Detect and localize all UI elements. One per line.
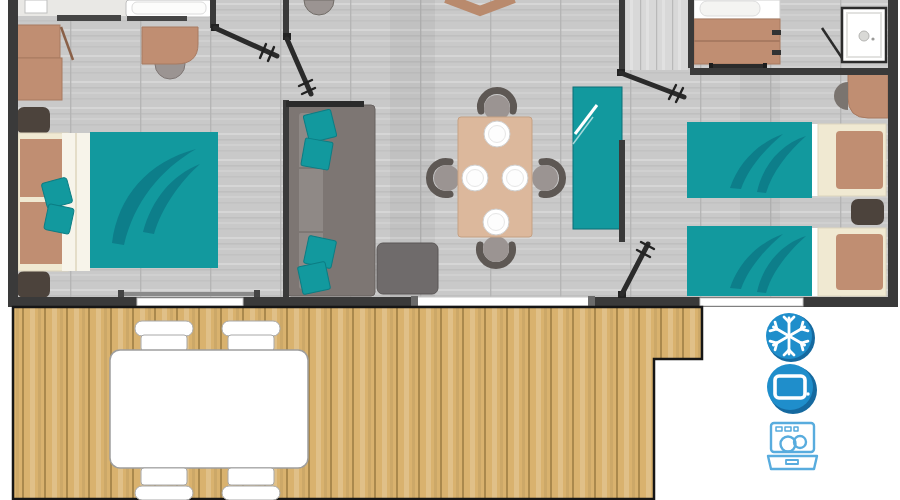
sofa-cushion: [301, 138, 333, 170]
drawer-handle: [772, 50, 781, 55]
floor-plan-canvas: [0, 0, 900, 500]
terrace: [13, 307, 702, 500]
nightstand: [17, 271, 50, 298]
single-bed-2: [687, 226, 886, 296]
right-wall: [888, 0, 898, 307]
partition-wall: [283, 100, 289, 297]
desk: [142, 27, 198, 64]
bathroom-wall: [690, 68, 888, 75]
sofa-rail-wall: [286, 101, 364, 107]
shower-drain: [859, 31, 869, 41]
pillow: [836, 131, 883, 189]
outdoor-chair: [135, 321, 193, 336]
tv-cabinet: [377, 243, 438, 294]
hallway-floor: [625, 0, 688, 70]
kitchen-counter: [573, 87, 622, 229]
tv-icon: [767, 364, 817, 414]
sliding-bay-door: [417, 297, 590, 306]
sofa: [287, 105, 375, 296]
duvet: [90, 132, 218, 268]
throw-cushion: [44, 204, 75, 235]
sofa-cushion: [297, 261, 330, 294]
left-wall: [8, 0, 18, 307]
building: [8, 0, 898, 307]
bathroom-wall: [688, 0, 694, 68]
outdoor-chair: [135, 486, 193, 500]
outdoor-chair: [222, 321, 280, 336]
snowflake-icon: [766, 313, 815, 362]
pillow: [836, 234, 883, 290]
floor-plan: [0, 0, 900, 500]
outdoor-table: [110, 350, 308, 468]
partition-wall: [283, 0, 289, 33]
drawer-handle: [772, 30, 781, 35]
window: [25, 0, 47, 13]
nightstand: [17, 107, 50, 134]
window: [700, 298, 803, 306]
partition-wall: [619, 0, 625, 72]
washbasin-vanity: [694, 0, 781, 64]
partition-wall: [619, 140, 625, 242]
shelf-rail: [127, 16, 187, 21]
wardrobe: [848, 74, 888, 118]
window: [137, 298, 243, 306]
double-bed: [18, 132, 218, 271]
amenity-icons: [766, 313, 817, 469]
dishwasher-icon: [768, 423, 817, 469]
single-bed-1: [687, 122, 886, 198]
shelf-rail: [57, 15, 121, 21]
nightstand: [851, 199, 884, 225]
outdoor-chair: [222, 486, 280, 500]
